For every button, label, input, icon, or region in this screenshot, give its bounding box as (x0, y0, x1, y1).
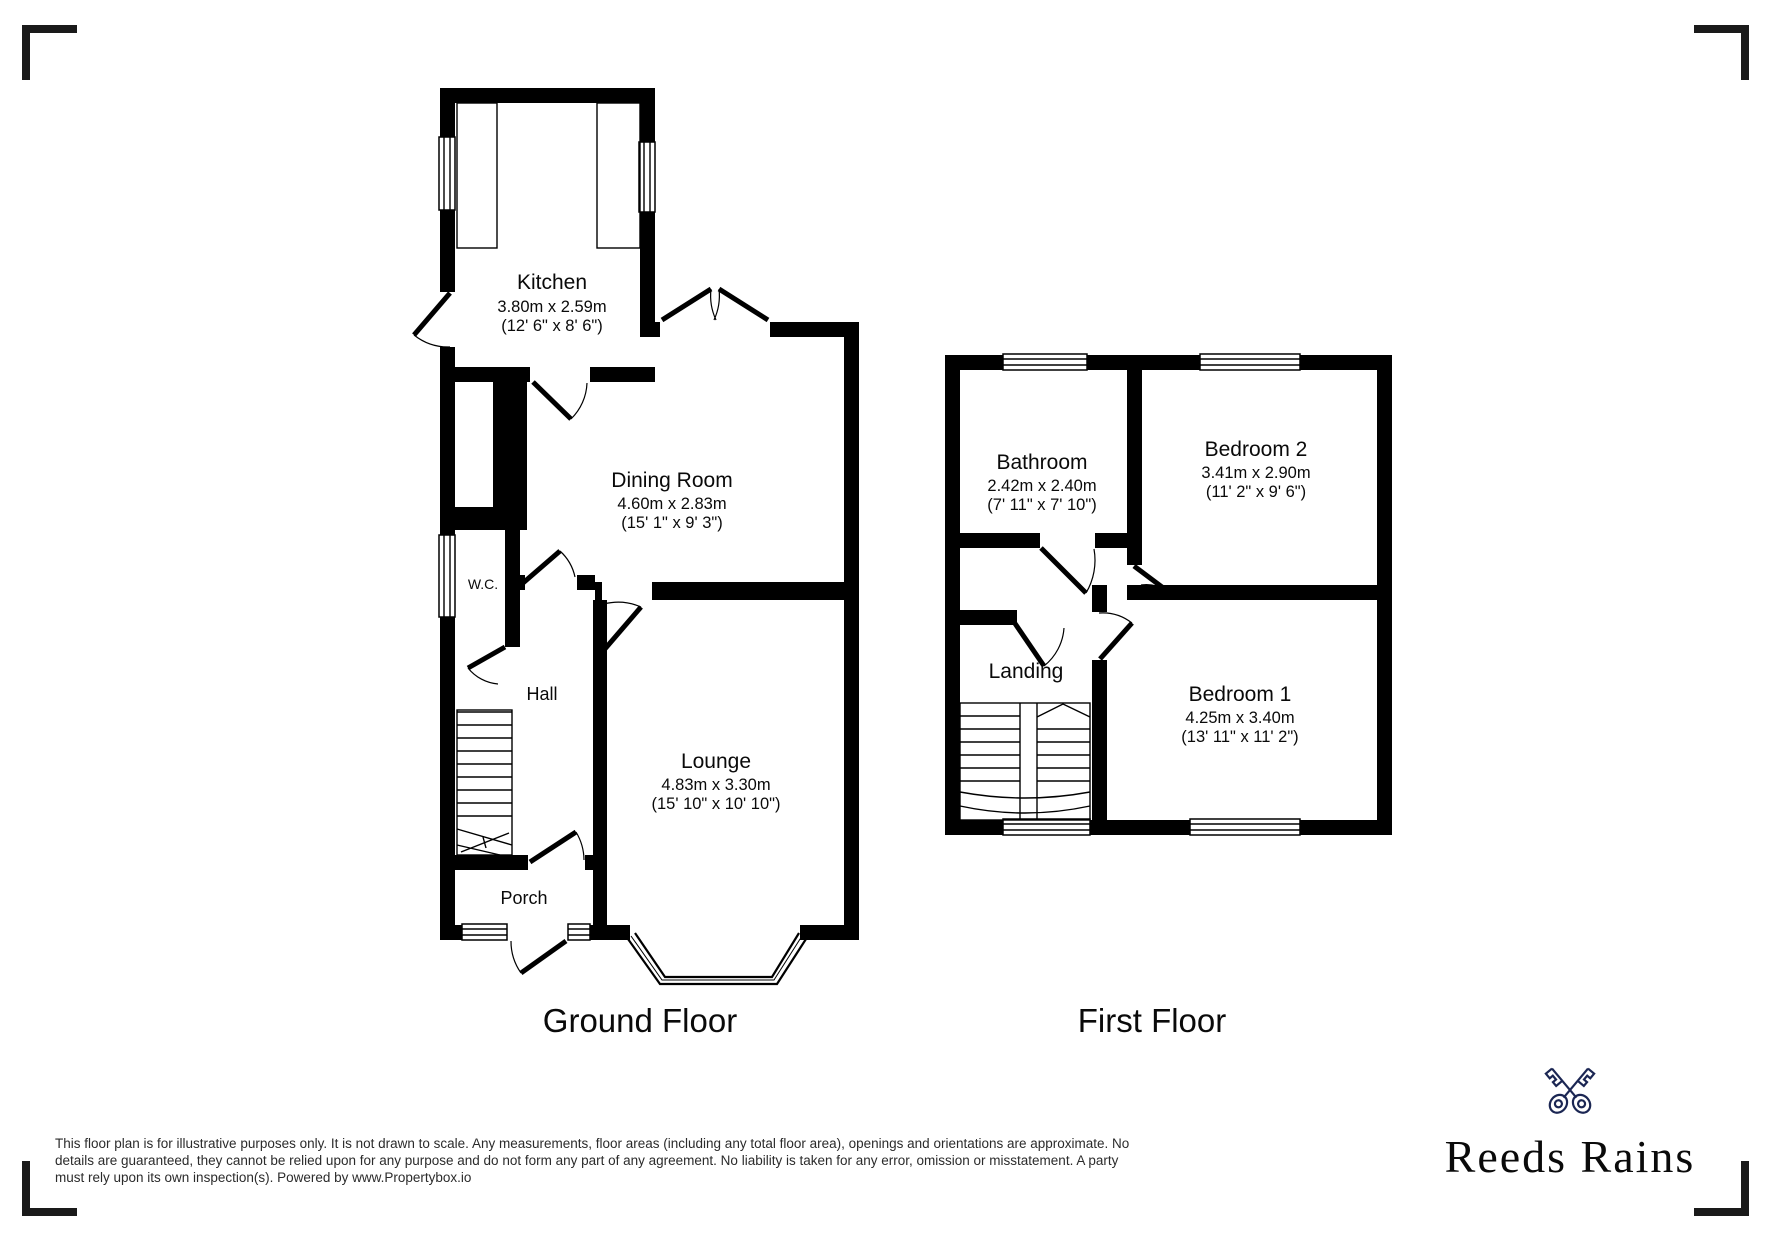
floorplan-page: Kitchen 3.80m x 2.59m (12' 6" x 8' 6") D… (0, 0, 1771, 1239)
first-floor-title: First Floor (1078, 1002, 1227, 1039)
hall-label: Hall (526, 684, 557, 704)
room-dining-label: Dining Room 4.60m x 2.83m (15' 1" x 9' 3… (611, 469, 732, 532)
bedroom2-name: Bedroom 2 (1205, 438, 1308, 461)
crop-marks (26, 29, 1745, 1212)
ground-floor-plan: Kitchen 3.80m x 2.59m (12' 6" x 8' 6") D… (414, 88, 859, 984)
bedroom1-metric: 4.25m x 3.40m (1185, 709, 1294, 727)
bedroom2-imperial: (11' 2" x 9' 6") (1206, 483, 1306, 501)
ground-floor-stairs (457, 710, 512, 855)
crop-mark-bottom-right (1694, 1161, 1745, 1212)
bedroom1-imperial: (13' 11" x 11' 2") (1181, 728, 1298, 746)
crossed-keys-icon (1546, 1063, 1594, 1116)
bathroom-door (1041, 548, 1095, 593)
bedroom1-name: Bedroom 1 (1189, 683, 1292, 706)
room-bedroom1-label: Bedroom 1 4.25m x 3.40m (13' 11" x 11' 2… (1181, 683, 1298, 746)
dining-metric: 4.60m x 2.83m (617, 495, 726, 513)
kitchen-window-right (639, 142, 655, 212)
brand-name: Reeds Rains (1445, 1131, 1696, 1182)
dining-name: Dining Room (611, 469, 732, 492)
disclaimer-line-3: must rely upon its own inspection(s). Po… (55, 1170, 471, 1185)
kitchen-imperial: (12' 6" x 8' 6") (501, 317, 602, 335)
crop-mark-top-right (1694, 29, 1745, 80)
lounge-name: Lounge (681, 750, 751, 773)
room-kitchen-label: Kitchen 3.80m x 2.59m (12' 6" x 8' 6") (497, 271, 606, 335)
bay-window (628, 933, 806, 984)
first-floor-plan: Bathroom 2.42m x 2.40m (7' 11" x 7' 10")… (945, 354, 1392, 835)
kitchen-metric: 3.80m x 2.59m (497, 298, 606, 316)
kitchen-name: Kitchen (517, 271, 587, 294)
wc-door (468, 647, 505, 684)
disclaimer-line-2: details are guaranteed, they cannot be r… (55, 1153, 1119, 1168)
kitchen-exterior-door (414, 293, 450, 347)
wc-label: W.C. (468, 576, 498, 592)
porch-window-left (462, 924, 507, 940)
lounge-metric: 4.83m x 3.30m (661, 776, 770, 794)
kitchen-window-left (439, 137, 455, 210)
kitchen-counters (457, 103, 640, 248)
landing-label: Landing (989, 660, 1064, 683)
first-floor-stairs (960, 703, 1090, 820)
crop-mark-bottom-left (26, 1161, 77, 1212)
crop-mark-top-left (26, 29, 77, 80)
bathroom-imperial: (7' 11" x 7' 10") (987, 496, 1096, 514)
room-bedroom2-label: Bedroom 2 3.41m x 2.90m (11' 2" x 9' 6") (1201, 438, 1310, 501)
first-floor-walls (945, 355, 1392, 835)
brand-logo: Reeds Rains (1445, 1063, 1696, 1182)
porch-label: Porch (500, 888, 547, 908)
porch-window-right (568, 924, 590, 940)
dining-hall-door (523, 551, 575, 583)
lounge-door (604, 602, 641, 650)
room-bathroom-label: Bathroom 2.42m x 2.40m (7' 11" x 7' 10") (987, 451, 1096, 514)
bedroom2-metric: 3.41m x 2.90m (1201, 464, 1310, 482)
french-doors (662, 289, 768, 320)
kitchen-dining-door (533, 382, 587, 419)
disclaimer: This floor plan is for illustrative purp… (55, 1136, 1129, 1185)
landing-window (1003, 819, 1090, 835)
wc-window (439, 535, 455, 617)
bathroom-window (1003, 354, 1087, 370)
bathroom-name: Bathroom (996, 451, 1087, 474)
bathroom-metric: 2.42m x 2.40m (987, 477, 1096, 495)
room-lounge-label: Lounge 4.83m x 3.30m (15' 10" x 10' 10") (651, 750, 780, 813)
dining-imperial: (15' 1" x 9' 3") (621, 514, 722, 532)
bedroom1-window (1190, 819, 1300, 835)
front-door (511, 941, 566, 973)
bedroom1-door (1099, 613, 1132, 659)
lounge-imperial: (15' 10" x 10' 10") (651, 795, 780, 813)
ground-floor-title: Ground Floor (543, 1002, 737, 1039)
bedroom2-window (1200, 354, 1300, 370)
disclaimer-line-1: This floor plan is for illustrative purp… (55, 1136, 1129, 1151)
porch-door (530, 832, 584, 862)
floorplan-drawing: Kitchen 3.80m x 2.59m (12' 6" x 8' 6") D… (0, 0, 1771, 1239)
